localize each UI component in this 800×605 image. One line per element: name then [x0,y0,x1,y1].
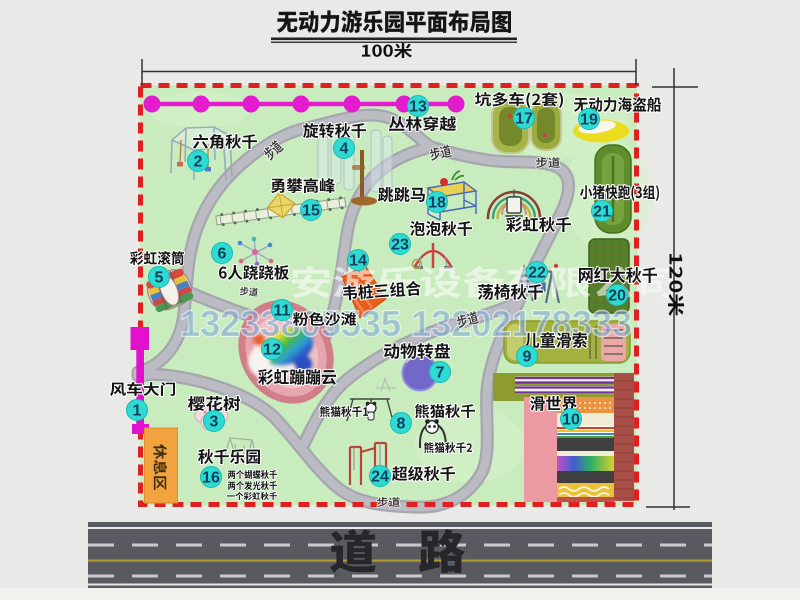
svg-text:16: 16 [202,470,220,487]
svg-text:8: 8 [397,416,406,433]
svg-text:14: 14 [349,253,367,270]
svg-text:17: 17 [515,111,533,128]
svg-text:12: 12 [263,342,281,359]
svg-text:24: 24 [371,469,389,486]
svg-text:5: 5 [155,270,164,287]
svg-text:1: 1 [133,403,142,420]
svg-text:22: 22 [528,265,546,282]
svg-text:9: 9 [523,349,532,366]
svg-text:23: 23 [391,237,409,254]
svg-text:20: 20 [608,288,626,305]
svg-text:10: 10 [562,412,580,429]
svg-text:15: 15 [302,203,320,220]
svg-text:13: 13 [409,99,427,116]
svg-text:2: 2 [194,154,203,171]
svg-text:7: 7 [436,365,445,382]
svg-text:3: 3 [210,414,219,431]
svg-text:19: 19 [580,112,598,129]
svg-text:4: 4 [340,141,349,158]
svg-text:21: 21 [593,204,611,221]
svg-text:18: 18 [428,195,446,212]
svg-text:6: 6 [218,246,227,263]
svg-text:11: 11 [274,303,291,320]
